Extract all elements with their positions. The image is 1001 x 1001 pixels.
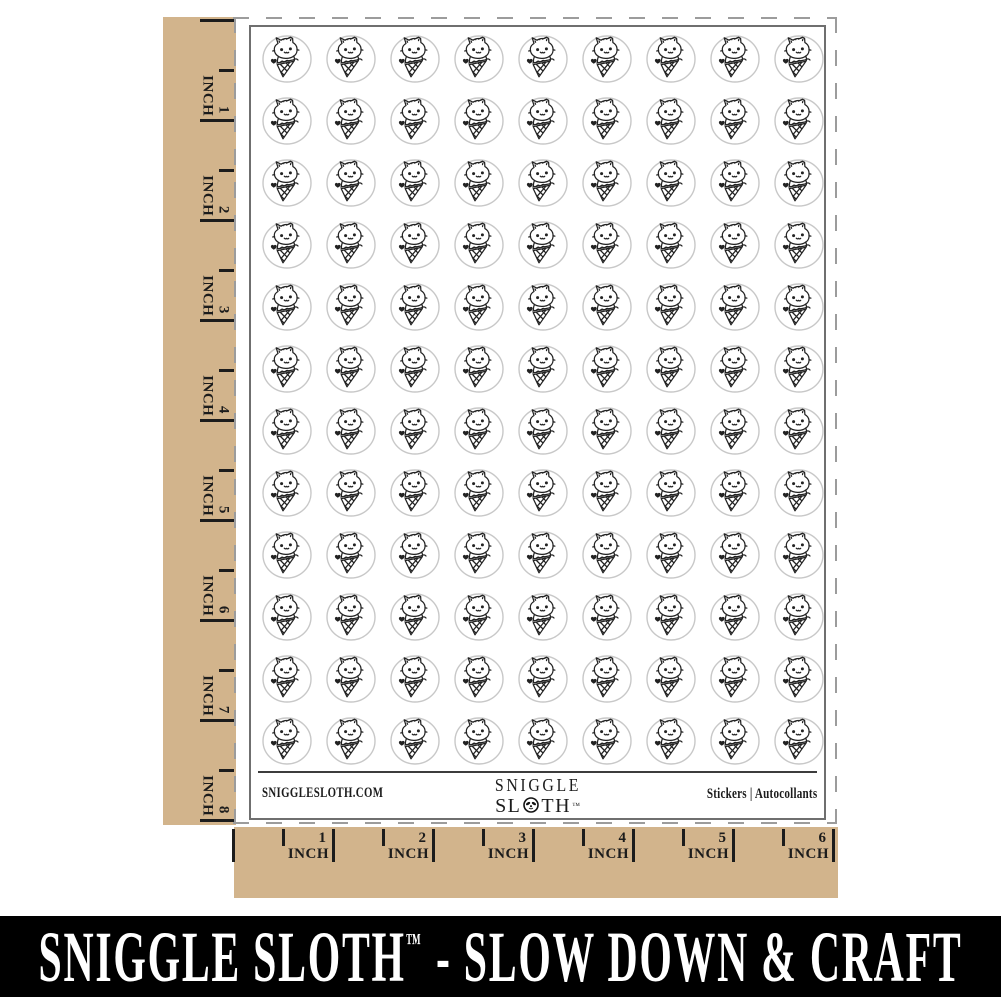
sticker-cat-in-ice-cream-cone bbox=[390, 283, 440, 331]
sticker-cat-in-ice-cream-cone bbox=[326, 35, 376, 83]
sticker-cat-in-ice-cream-cone bbox=[582, 283, 632, 331]
cut-line-top bbox=[233, 17, 837, 19]
sticker-cat-in-ice-cream-cone bbox=[582, 469, 632, 517]
sticker-cat-in-ice-cream-cone bbox=[326, 221, 376, 269]
sticker-cat-in-ice-cream-cone bbox=[518, 593, 568, 641]
sticker-cat-in-ice-cream-cone bbox=[390, 593, 440, 641]
logo-line2-end: TH bbox=[541, 796, 571, 816]
sticker-cat-in-ice-cream-cone bbox=[774, 283, 824, 331]
product-type-text: Stickers | Autocollants bbox=[706, 786, 817, 803]
sticker-cat-in-ice-cream-cone bbox=[774, 531, 824, 579]
ruler-half-tick bbox=[219, 69, 234, 72]
sticker-cat-in-ice-cream-cone bbox=[710, 97, 760, 145]
sticker-cat-in-ice-cream-cone bbox=[710, 159, 760, 207]
sticker-cat-in-ice-cream-cone bbox=[454, 407, 504, 455]
sticker-cat-in-ice-cream-cone bbox=[390, 345, 440, 393]
sticker-cat-in-ice-cream-cone bbox=[710, 531, 760, 579]
sticker-cat-in-ice-cream-cone bbox=[518, 345, 568, 393]
sticker-cat-in-ice-cream-cone bbox=[262, 593, 312, 641]
sticker-cat-in-ice-cream-cone bbox=[390, 35, 440, 83]
sticker-cat-in-ice-cream-cone bbox=[326, 531, 376, 579]
sticker-cat-in-ice-cream-cone bbox=[326, 717, 376, 765]
ruler-label: 3INCH bbox=[471, 831, 529, 863]
sticker-cat-in-ice-cream-cone bbox=[646, 345, 696, 393]
banner-brand: SNIGGLE SLOTH bbox=[39, 917, 406, 997]
sticker-cat-in-ice-cream-cone bbox=[582, 531, 632, 579]
ruler-half-tick bbox=[219, 569, 234, 572]
sticker-cat-in-ice-cream-cone bbox=[710, 655, 760, 703]
logo-line1: SNIGGLE bbox=[494, 776, 580, 794]
ruler-tick bbox=[532, 829, 535, 862]
ruler-tick bbox=[232, 829, 235, 862]
sticker-cat-in-ice-cream-cone bbox=[710, 345, 760, 393]
sticker-cat-in-ice-cream-cone bbox=[710, 593, 760, 641]
sticker-cat-in-ice-cream-cone bbox=[710, 469, 760, 517]
sticker-cat-in-ice-cream-cone bbox=[582, 35, 632, 83]
ruler-half-tick bbox=[219, 269, 234, 272]
sticker-cat-in-ice-cream-cone bbox=[390, 469, 440, 517]
ruler-label: 6INCH bbox=[198, 573, 232, 618]
sticker-cat-in-ice-cream-cone bbox=[582, 345, 632, 393]
sticker-cat-in-ice-cream-cone bbox=[326, 655, 376, 703]
sticker-cat-in-ice-cream-cone bbox=[262, 159, 312, 207]
sticker-cat-in-ice-cream-cone bbox=[710, 221, 760, 269]
sticker-cat-in-ice-cream-cone bbox=[774, 593, 824, 641]
ruler-tick bbox=[200, 519, 234, 522]
ruler-label: 3INCH bbox=[198, 273, 232, 318]
sticker-cat-in-ice-cream-cone bbox=[646, 655, 696, 703]
sticker-cat-in-ice-cream-cone bbox=[774, 221, 824, 269]
sticker-cat-in-ice-cream-cone bbox=[518, 283, 568, 331]
logo-trademark: ™ bbox=[572, 802, 580, 810]
sticker-cat-in-ice-cream-cone bbox=[390, 97, 440, 145]
ruler-label: 7INCH bbox=[198, 673, 232, 718]
sticker-cat-in-ice-cream-cone bbox=[518, 407, 568, 455]
logo-line2-start: SL bbox=[495, 796, 521, 816]
footer-divider bbox=[258, 771, 817, 773]
sticker-cat-in-ice-cream-cone bbox=[454, 655, 504, 703]
ruler-tick bbox=[332, 829, 335, 862]
sticker-cat-in-ice-cream-cone bbox=[262, 345, 312, 393]
ruler-label: 2INCH bbox=[198, 173, 232, 218]
sticker-cat-in-ice-cream-cone bbox=[326, 469, 376, 517]
sticker-grid bbox=[251, 27, 824, 818]
cut-line-right bbox=[835, 17, 837, 824]
ruler-label: 5INCH bbox=[671, 831, 729, 863]
ruler-tick bbox=[200, 719, 234, 722]
sticker-cat-in-ice-cream-cone bbox=[774, 469, 824, 517]
sticker-cat-in-ice-cream-cone bbox=[646, 159, 696, 207]
sticker-cat-in-ice-cream-cone bbox=[518, 655, 568, 703]
sticker-cat-in-ice-cream-cone bbox=[454, 159, 504, 207]
ruler-half-tick bbox=[219, 369, 234, 372]
sticker-cat-in-ice-cream-cone bbox=[262, 221, 312, 269]
sticker-cat-in-ice-cream-cone bbox=[326, 593, 376, 641]
ruler-tick bbox=[432, 829, 435, 862]
sticker-cat-in-ice-cream-cone bbox=[454, 531, 504, 579]
sticker-cat-in-ice-cream-cone bbox=[646, 407, 696, 455]
ruler-tick bbox=[732, 829, 735, 862]
sticker-cat-in-ice-cream-cone bbox=[646, 35, 696, 83]
sticker-cat-in-ice-cream-cone bbox=[582, 221, 632, 269]
ruler-tick bbox=[200, 319, 234, 322]
product-image: 1INCH2INCH3INCH4INCH5INCH6INCH7INCH8INCH… bbox=[0, 0, 1001, 1001]
sticker-cat-in-ice-cream-cone bbox=[454, 345, 504, 393]
sticker-cat-in-ice-cream-cone bbox=[390, 717, 440, 765]
cut-line-bottom bbox=[233, 822, 837, 824]
ruler-tick bbox=[200, 19, 234, 22]
ruler-tick bbox=[200, 819, 234, 822]
sticker-cat-in-ice-cream-cone bbox=[326, 407, 376, 455]
sticker-cat-in-ice-cream-cone bbox=[262, 655, 312, 703]
sticker-cat-in-ice-cream-cone bbox=[774, 35, 824, 83]
sticker-sheet: SNIGGLESLOTH.COM SNIGGLE SL TH™ Stickers… bbox=[249, 25, 826, 820]
sticker-cat-in-ice-cream-cone bbox=[262, 97, 312, 145]
sticker-cat-in-ice-cream-cone bbox=[646, 717, 696, 765]
banner-text: SNIGGLE SLOTH™- SLOW DOWN & CRAFT bbox=[39, 921, 963, 993]
sticker-cat-in-ice-cream-cone bbox=[454, 469, 504, 517]
ruler-label: 5INCH bbox=[198, 473, 232, 518]
sticker-cat-in-ice-cream-cone bbox=[262, 717, 312, 765]
sticker-cat-in-ice-cream-cone bbox=[710, 407, 760, 455]
ruler-tick bbox=[200, 219, 234, 222]
sticker-cat-in-ice-cream-cone bbox=[710, 283, 760, 331]
sticker-cat-in-ice-cream-cone bbox=[454, 593, 504, 641]
ruler-tick bbox=[632, 829, 635, 862]
sticker-cat-in-ice-cream-cone bbox=[326, 345, 376, 393]
ruler-tick bbox=[200, 419, 234, 422]
banner-tagline: - SLOW DOWN & CRAFT bbox=[436, 917, 962, 997]
sticker-cat-in-ice-cream-cone bbox=[518, 531, 568, 579]
sticker-cat-in-ice-cream-cone bbox=[390, 655, 440, 703]
sticker-cat-in-ice-cream-cone bbox=[454, 97, 504, 145]
ruler-half-tick bbox=[219, 469, 234, 472]
ruler-label: 8INCH bbox=[198, 773, 232, 818]
sticker-cat-in-ice-cream-cone bbox=[582, 717, 632, 765]
sticker-cat-in-ice-cream-cone bbox=[646, 469, 696, 517]
ruler-half-tick bbox=[219, 669, 234, 672]
sticker-cat-in-ice-cream-cone bbox=[774, 97, 824, 145]
ruler-tick bbox=[832, 829, 835, 862]
sticker-cat-in-ice-cream-cone bbox=[774, 407, 824, 455]
sticker-cat-in-ice-cream-cone bbox=[390, 221, 440, 269]
sticker-cat-in-ice-cream-cone bbox=[646, 593, 696, 641]
ruler-label: 4INCH bbox=[198, 373, 232, 418]
sticker-cat-in-ice-cream-cone bbox=[774, 345, 824, 393]
ruler-label: 6INCH bbox=[771, 831, 829, 863]
sticker-cat-in-ice-cream-cone bbox=[454, 717, 504, 765]
sticker-cat-in-ice-cream-cone bbox=[582, 593, 632, 641]
sticker-cat-in-ice-cream-cone bbox=[646, 531, 696, 579]
banner-trademark: ™ bbox=[406, 928, 421, 957]
ruler-label: 2INCH bbox=[371, 831, 429, 863]
sticker-cat-in-ice-cream-cone bbox=[518, 221, 568, 269]
sticker-cat-in-ice-cream-cone bbox=[262, 283, 312, 331]
sticker-cat-in-ice-cream-cone bbox=[646, 97, 696, 145]
cut-line-left bbox=[234, 17, 236, 824]
sticker-cat-in-ice-cream-cone bbox=[326, 283, 376, 331]
ruler-half-tick bbox=[219, 769, 234, 772]
sticker-cat-in-ice-cream-cone bbox=[262, 531, 312, 579]
sticker-cat-in-ice-cream-cone bbox=[646, 221, 696, 269]
sticker-cat-in-ice-cream-cone bbox=[582, 407, 632, 455]
sticker-cat-in-ice-cream-cone bbox=[582, 97, 632, 145]
sticker-cat-in-ice-cream-cone bbox=[646, 283, 696, 331]
sloth-face-icon bbox=[523, 797, 539, 817]
sticker-cat-in-ice-cream-cone bbox=[582, 159, 632, 207]
sticker-cat-in-ice-cream-cone bbox=[390, 407, 440, 455]
sticker-cat-in-ice-cream-cone bbox=[326, 159, 376, 207]
ruler-label: 1INCH bbox=[198, 73, 232, 118]
sticker-cat-in-ice-cream-cone bbox=[518, 97, 568, 145]
sticker-cat-in-ice-cream-cone bbox=[454, 283, 504, 331]
sticker-cat-in-ice-cream-cone bbox=[710, 717, 760, 765]
ruler-tick bbox=[200, 119, 234, 122]
sticker-cat-in-ice-cream-cone bbox=[454, 221, 504, 269]
sticker-cat-in-ice-cream-cone bbox=[262, 407, 312, 455]
sticker-cat-in-ice-cream-cone bbox=[326, 97, 376, 145]
sticker-cat-in-ice-cream-cone bbox=[390, 159, 440, 207]
sticker-cat-in-ice-cream-cone bbox=[262, 35, 312, 83]
sticker-cat-in-ice-cream-cone bbox=[518, 35, 568, 83]
sticker-cat-in-ice-cream-cone bbox=[262, 469, 312, 517]
sticker-cat-in-ice-cream-cone bbox=[710, 35, 760, 83]
sticker-cat-in-ice-cream-cone bbox=[774, 159, 824, 207]
sticker-cat-in-ice-cream-cone bbox=[774, 717, 824, 765]
sticker-cat-in-ice-cream-cone bbox=[518, 469, 568, 517]
sticker-cat-in-ice-cream-cone bbox=[582, 655, 632, 703]
sticker-cat-in-ice-cream-cone bbox=[518, 717, 568, 765]
ruler-label: 1INCH bbox=[271, 831, 329, 863]
ruler-label: 4INCH bbox=[571, 831, 629, 863]
ruler-tick bbox=[200, 619, 234, 622]
sticker-cat-in-ice-cream-cone bbox=[390, 531, 440, 579]
sticker-cat-in-ice-cream-cone bbox=[774, 655, 824, 703]
sticker-cat-in-ice-cream-cone bbox=[454, 35, 504, 83]
sticker-cat-in-ice-cream-cone bbox=[518, 159, 568, 207]
ruler-half-tick bbox=[219, 169, 234, 172]
brand-banner: SNIGGLE SLOTH™- SLOW DOWN & CRAFT bbox=[0, 916, 1001, 997]
